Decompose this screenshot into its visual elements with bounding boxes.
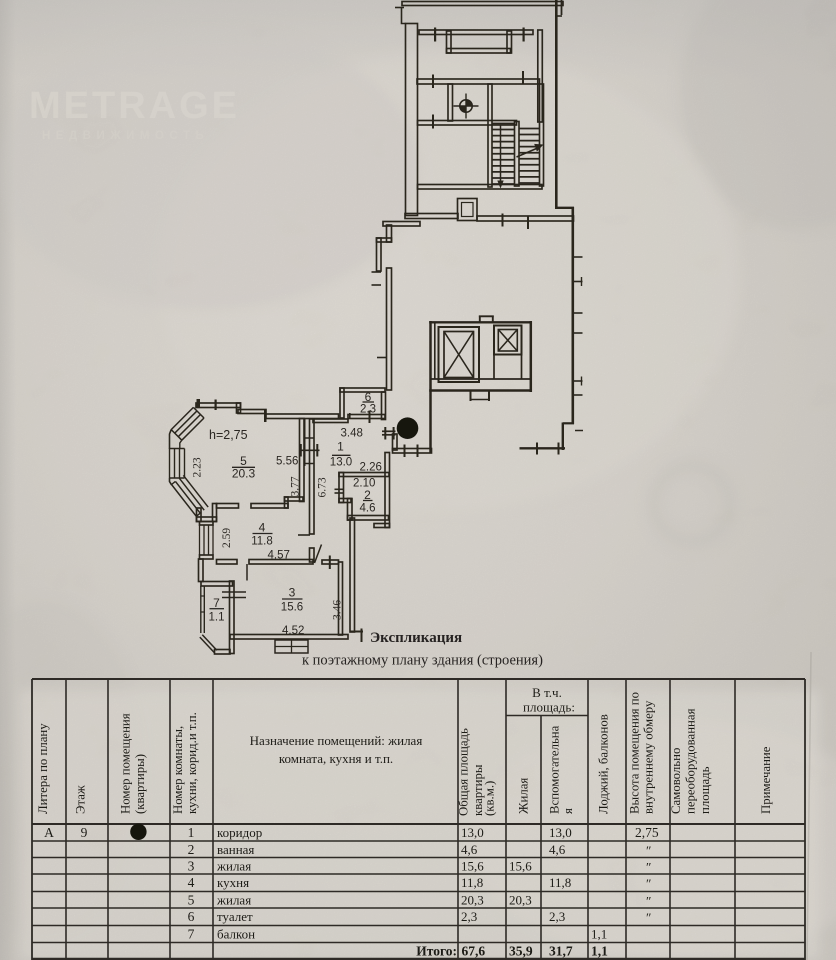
- svg-text:2: 2: [188, 842, 195, 857]
- svg-text:переоборудованная: переоборудованная: [684, 708, 698, 814]
- svg-text:комната, кухня и т.п.: комната, кухня и т.п.: [279, 751, 393, 766]
- svg-text:3.77: 3.77: [290, 476, 302, 496]
- svg-text:(квартиры): (квартиры): [133, 754, 147, 814]
- svg-text:15,6: 15,6: [461, 859, 484, 874]
- svg-text:2,3: 2,3: [461, 909, 477, 924]
- svg-text:20,3: 20,3: [509, 893, 532, 908]
- svg-text:Номер комнаты,: Номер комнаты,: [171, 726, 185, 814]
- svg-text:11,8: 11,8: [461, 875, 483, 890]
- svg-text:жилая: жилая: [216, 893, 251, 908]
- svg-text:20,3: 20,3: [461, 893, 484, 908]
- svg-text:5.56: 5.56: [276, 456, 298, 468]
- svg-text:15,6: 15,6: [509, 859, 532, 874]
- svg-text:4.57: 4.57: [268, 550, 290, 562]
- svg-text:1: 1: [188, 825, 195, 840]
- svg-text:2.26: 2.26: [360, 462, 382, 474]
- svg-text:4.6: 4.6: [360, 503, 376, 515]
- svg-text:13,0: 13,0: [549, 825, 572, 840]
- svg-text:жилая: жилая: [216, 859, 251, 874]
- svg-text:Вспомогательна: Вспомогательна: [548, 725, 562, 814]
- svg-text:внутреннему обмеру: внутреннему обмеру: [642, 700, 656, 814]
- svg-text:4,6: 4,6: [461, 842, 478, 857]
- svg-text:2.59: 2.59: [221, 528, 233, 548]
- svg-text:1.1: 1.1: [209, 612, 225, 624]
- svg-text:кухни, корид.и т.п.: кухни, корид.и т.п.: [185, 712, 199, 814]
- svg-text:Номер помещения: Номер помещения: [119, 713, 133, 814]
- svg-text:5: 5: [188, 893, 195, 908]
- svg-text:ванная: ванная: [217, 842, 254, 857]
- svg-text:Лоджий, балконов: Лоджий, балконов: [597, 714, 611, 814]
- svg-text:1,1: 1,1: [591, 927, 607, 942]
- svg-text:Общая площадь: Общая площадь: [457, 728, 471, 816]
- svg-text:НЕДВИЖИМОСТЬ: НЕДВИЖИМОСТЬ: [42, 130, 209, 142]
- svg-text:Примечание: Примечание: [759, 746, 773, 814]
- svg-text:Жилая: Жилая: [517, 778, 531, 814]
- svg-text:4,6: 4,6: [549, 842, 566, 857]
- svg-text:А: А: [44, 825, 54, 840]
- svg-text:″: ″: [646, 843, 651, 858]
- svg-text:67,6: 67,6: [462, 944, 486, 959]
- svg-text:4: 4: [259, 521, 266, 535]
- svg-text:2.3: 2.3: [360, 404, 376, 416]
- svg-text:Высота помещения по: Высота помещения по: [628, 692, 642, 814]
- svg-text:35,9: 35,9: [509, 944, 533, 959]
- svg-text:к поэтажному плану здания (стр: к поэтажному плану здания (строения): [302, 653, 543, 669]
- svg-text:В т.ч.: В т.ч.: [532, 685, 562, 700]
- svg-text:кухня: кухня: [217, 875, 249, 890]
- svg-text:″: ″: [646, 894, 651, 909]
- svg-text:7: 7: [213, 596, 220, 610]
- svg-text:Этаж: Этаж: [74, 785, 88, 814]
- svg-text:я: я: [561, 808, 575, 814]
- svg-text:Самовольно: Самовольно: [669, 748, 683, 814]
- svg-text:4.52: 4.52: [282, 625, 304, 637]
- svg-text:1: 1: [337, 440, 344, 454]
- svg-text:Итого:: Итого:: [416, 944, 457, 959]
- svg-text:коридор: коридор: [217, 825, 262, 840]
- svg-text:Экспликация: Экспликация: [370, 630, 462, 646]
- svg-text:3.48: 3.48: [341, 428, 363, 440]
- svg-text:туалет: туалет: [217, 909, 253, 924]
- svg-text:″: ″: [646, 910, 651, 925]
- svg-text:2,3: 2,3: [549, 909, 565, 924]
- svg-text:(кв.м.): (кв.м.): [483, 781, 497, 816]
- svg-text:3: 3: [289, 586, 296, 600]
- svg-text:h=2,75: h=2,75: [209, 428, 248, 442]
- svg-text:13.0: 13.0: [330, 457, 352, 469]
- svg-text:13,0: 13,0: [461, 825, 484, 840]
- svg-text:3.46: 3.46: [332, 600, 344, 620]
- svg-text:Назначение помещений: жилая: Назначение помещений: жилая: [250, 733, 423, 748]
- svg-text:20.3: 20.3: [232, 467, 256, 481]
- svg-text:4: 4: [188, 875, 195, 890]
- svg-text:METRAGE: METRAGE: [29, 85, 240, 127]
- svg-text:11,8: 11,8: [549, 875, 571, 890]
- svg-text:3: 3: [188, 859, 195, 874]
- svg-text:″: ″: [646, 860, 651, 875]
- svg-text:1,1: 1,1: [591, 944, 608, 959]
- svg-text:31,7: 31,7: [549, 944, 573, 959]
- svg-text:7: 7: [188, 927, 195, 942]
- svg-text:2.23: 2.23: [192, 457, 204, 477]
- svg-text:15.6: 15.6: [281, 602, 303, 614]
- svg-text:9: 9: [81, 825, 88, 840]
- svg-text:площадь: площадь: [698, 766, 712, 814]
- svg-text:11.8: 11.8: [251, 536, 273, 548]
- svg-text:балкон: балкон: [217, 927, 255, 942]
- svg-text:6: 6: [188, 909, 195, 924]
- svg-text:6.73: 6.73: [317, 477, 329, 497]
- svg-text:Литера по плану: Литера по плану: [36, 723, 50, 814]
- svg-text:площадь:: площадь:: [523, 700, 575, 715]
- svg-text:2,75: 2,75: [635, 825, 659, 840]
- svg-text:″: ″: [646, 876, 651, 891]
